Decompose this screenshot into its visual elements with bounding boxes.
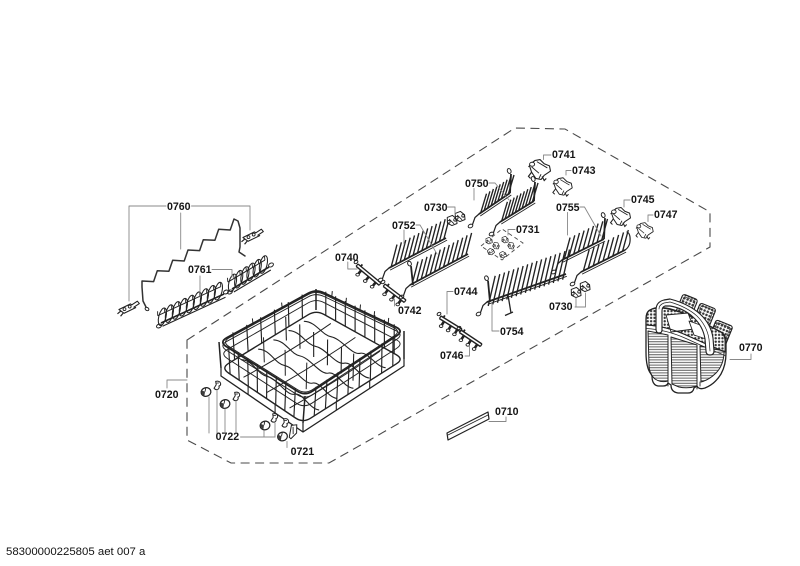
svg-text:0761: 0761 [188,264,212,276]
svg-text:0721: 0721 [291,446,315,458]
svg-text:58300000225805 aet 007 a: 58300000225805 aet 007 a [6,546,146,558]
svg-text:0743: 0743 [572,165,596,177]
svg-text:0770: 0770 [739,342,763,354]
svg-text:0720: 0720 [155,389,179,401]
svg-text:0760: 0760 [167,201,191,213]
svg-text:0740: 0740 [335,252,359,264]
svg-text:0741: 0741 [552,149,576,161]
svg-text:0742: 0742 [398,305,422,317]
svg-text:0730: 0730 [424,202,448,214]
svg-text:0744: 0744 [454,286,478,298]
svg-text:0750: 0750 [465,178,489,190]
svg-text:0731: 0731 [516,224,540,236]
svg-text:0710: 0710 [495,406,519,418]
svg-text:0754: 0754 [500,326,524,338]
svg-text:0755: 0755 [556,202,580,214]
svg-text:0746: 0746 [440,350,464,362]
svg-text:0730: 0730 [549,301,573,313]
svg-text:0747: 0747 [654,209,678,221]
svg-text:0745: 0745 [631,194,655,206]
